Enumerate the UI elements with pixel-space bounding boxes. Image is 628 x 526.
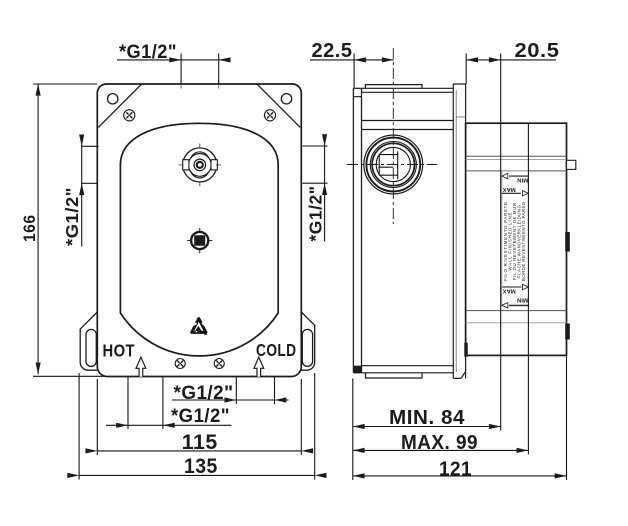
svg-text:BORDE REVESTIMIENTO PARED: BORDE REVESTIMIENTO PARED <box>521 202 526 281</box>
svg-text:166: 166 <box>21 215 39 243</box>
svg-text:MAX: MAX <box>502 186 515 192</box>
svg-text:*G1/2": *G1/2" <box>119 41 177 63</box>
svg-text:MIN. 84: MIN. 84 <box>389 407 465 429</box>
svg-text:121: 121 <box>439 457 472 480</box>
svg-text:20.5: 20.5 <box>515 40 560 62</box>
svg-text:MAX: MAX <box>502 287 515 293</box>
svg-text:MIN: MIN <box>517 176 528 182</box>
svg-text:135: 135 <box>184 455 218 478</box>
svg-text:22.5: 22.5 <box>312 40 353 62</box>
svg-text:MIN: MIN <box>517 297 528 303</box>
svg-text:COLD: COLD <box>256 340 297 360</box>
svg-text:*G1/2": *G1/2" <box>171 405 230 427</box>
svg-text:*G1/2": *G1/2" <box>62 187 82 246</box>
svg-text:*G1/2": *G1/2" <box>174 382 234 404</box>
svg-text:MAX. 99: MAX. 99 <box>401 432 478 454</box>
svg-text:115: 115 <box>182 431 218 454</box>
svg-text:*G1/2": *G1/2" <box>306 186 326 242</box>
svg-text:HOT: HOT <box>103 341 136 361</box>
